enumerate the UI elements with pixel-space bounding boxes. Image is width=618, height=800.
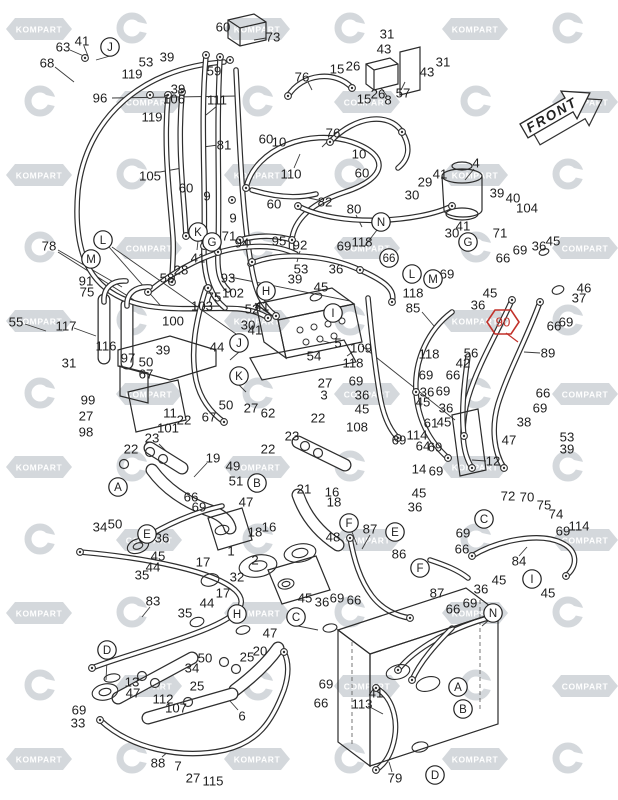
fitting — [251, 261, 253, 263]
fitting — [409, 617, 411, 619]
part-number-callout: 66 — [455, 542, 470, 557]
parts-diagram-page: KOMPART COMPART FRONT — [0, 0, 618, 800]
part-number-callout: 30 — [405, 188, 420, 203]
part-number-callout: 98 — [79, 425, 94, 440]
fitting — [79, 551, 81, 553]
part-number-callout: 69 — [419, 368, 434, 383]
part-number-callout: 26 — [346, 59, 361, 74]
ref-letter-bubble: L — [403, 265, 421, 283]
fitting — [275, 315, 277, 317]
part-number-callout: 45 — [298, 591, 313, 606]
fitting — [84, 57, 86, 59]
part-number-callout: 66 — [347, 593, 362, 608]
fitting — [391, 301, 393, 303]
part-number-callout: 69 — [429, 464, 444, 479]
ref-letter-bubble: M — [82, 250, 100, 268]
ref-letter-bubble: H — [257, 282, 275, 300]
fitting — [463, 435, 465, 437]
part-number-callout: 49 — [226, 459, 241, 474]
part-number-callout: 41 — [255, 299, 270, 314]
part-number-callout: 63 — [56, 40, 71, 55]
parts-diagram: KOMPART COMPART FRONT — [0, 0, 618, 800]
ref-letter-bubble: M — [424, 270, 442, 288]
fitting — [451, 205, 453, 207]
part-number-callout: 20 — [253, 644, 268, 659]
fitting — [503, 467, 505, 469]
part-number-callout: 54 — [307, 349, 322, 364]
fitting — [397, 669, 399, 671]
part-number-callout: 107 — [165, 701, 187, 716]
ref-letter-bubble: 66 — [380, 249, 398, 267]
part-number-callout: 11 — [163, 406, 177, 421]
part-number-callout: 92 — [293, 238, 308, 253]
part-number-callout: 75 — [207, 290, 222, 305]
fitting — [539, 301, 541, 303]
part-number-callout: 15 — [357, 92, 372, 107]
part-number-callout: 85 — [406, 301, 421, 316]
fitting — [349, 537, 351, 539]
ref-letter-bubble: F — [340, 514, 358, 532]
part-number-callout: 45 — [437, 415, 452, 430]
part-number-callout: 66 — [446, 602, 461, 617]
ref-letter-text: C — [480, 514, 488, 526]
part-number-callout: 10 — [272, 135, 287, 150]
part-number-callout: 118 — [351, 235, 372, 250]
part-number-callout: 4 — [472, 156, 479, 171]
part-number-callout: 1 — [227, 544, 234, 559]
part-number-callout: 80 — [347, 202, 362, 217]
ref-letter-text: J — [236, 338, 242, 350]
part-number-callout: 45 — [492, 573, 507, 588]
part-number-callout: 22 — [177, 413, 192, 428]
fitting — [217, 251, 219, 253]
ref-letter-bubble: N — [372, 213, 390, 231]
part-number-callout: 41 — [248, 323, 263, 338]
part-number-callout: 39 — [160, 50, 175, 65]
part-number-callout: 36 — [471, 298, 486, 313]
part-number-callout: 84 — [512, 554, 527, 569]
ref-letter-text: C — [292, 612, 300, 624]
part-number-callout: 117 — [55, 319, 76, 334]
part-number-callout: 22 — [124, 442, 139, 457]
ref-letter-bubble: I — [324, 304, 342, 322]
ref-letter-text: N — [377, 217, 385, 229]
part-number-callout: 12 — [486, 454, 501, 469]
part-number-callout: 32 — [230, 570, 245, 585]
part-number-callout: 47 — [239, 495, 254, 510]
part-number-callout: 99 — [81, 393, 96, 408]
part-number-callout: 36 — [329, 262, 344, 277]
part-number-callout: 102 — [222, 286, 244, 301]
part-number-callout: 14 — [412, 462, 427, 477]
part-number-callout: 31 — [436, 55, 451, 70]
ref-letter-text: 66 — [383, 253, 396, 265]
part-number-callout: 66 — [547, 319, 562, 334]
part-number-callout: 3 — [320, 388, 327, 403]
fitting — [287, 95, 289, 97]
fitting — [471, 555, 473, 557]
part-number-callout: 23 — [285, 429, 300, 444]
ref-letter-bubble: C — [287, 608, 305, 626]
part-number-callout: 100 — [162, 314, 184, 329]
fitting — [565, 575, 567, 577]
fitting — [359, 269, 361, 271]
part-number-callout: 71 — [493, 226, 508, 241]
fitting — [283, 651, 285, 653]
ref-letter-text: K — [235, 371, 243, 383]
part-number-callout: 118 — [342, 356, 363, 371]
part-number-callout: 39 — [288, 272, 303, 287]
part-number-callout: 76 — [295, 70, 310, 85]
part-number-callout: 37 — [572, 291, 587, 306]
part-number-callout: 39 — [156, 343, 171, 358]
ref-letter-bubble: C — [475, 510, 493, 528]
part-number-callout: 35 — [135, 568, 150, 583]
fitting — [219, 56, 221, 58]
part-number-callout: 22 — [261, 442, 276, 457]
part-number-callout: 36 — [408, 500, 423, 515]
part-number-callout: 31 — [380, 27, 395, 42]
ref-letter-text: G — [208, 237, 217, 249]
ref-letter-bubble: J — [230, 334, 248, 352]
part-number-callout: 45 — [412, 486, 427, 501]
part-number-callout: 18 — [327, 495, 342, 510]
part-number-callout: 119 — [141, 110, 162, 125]
part-number-callout: 2 — [251, 553, 258, 568]
part-number-callout: 116 — [95, 339, 116, 354]
part-number-callout: 47 — [502, 433, 517, 448]
part-number-callout: 67 — [202, 410, 217, 425]
fitting — [205, 54, 207, 56]
part-number-callout: 59 — [207, 64, 222, 79]
ref-letter-bubble: H — [228, 605, 246, 623]
part-number-callout: 58 — [160, 271, 175, 286]
part-number-callout: 72 — [501, 489, 516, 504]
part-number-callout: 87 — [430, 586, 445, 601]
ref-letter-bubble: I — [523, 570, 541, 588]
fitting — [447, 457, 449, 459]
part-number-callout: 105 — [139, 169, 161, 184]
ref-letter-text: H — [262, 286, 270, 298]
ref-letter-text: M — [428, 274, 438, 286]
fitting — [245, 187, 247, 189]
part-number-callout: 69 — [463, 596, 478, 611]
part-number-callout: 41 — [433, 167, 448, 182]
fitting — [149, 94, 151, 96]
ref-letter-text: B — [253, 478, 261, 490]
ref-letter-bubble: E — [138, 525, 156, 543]
part-number-callout: 33 — [71, 716, 86, 731]
part-number-callout: 17 — [216, 586, 231, 601]
part-number-callout: 66 — [496, 251, 511, 266]
part-number-callout: 9 — [229, 211, 236, 226]
part-number-callout: 66 — [314, 696, 329, 711]
part-number-callout: 45 — [314, 280, 329, 295]
part-number-callout: 104 — [516, 201, 538, 216]
fitting — [401, 131, 403, 133]
ref-letter-bubble: F — [411, 559, 429, 577]
fitting — [329, 141, 331, 143]
part-number-callout: 69 — [428, 440, 443, 455]
part-number-callout: 5 — [334, 336, 341, 351]
ref-letter-text: G — [464, 237, 473, 249]
fitting — [297, 205, 299, 207]
ref-letter-text: A — [114, 482, 122, 494]
ref-letter-text: M — [86, 254, 96, 266]
part-number-callout: 30 — [445, 226, 460, 241]
part-number-callout: 69 — [436, 384, 451, 399]
fitting — [231, 199, 233, 201]
part-number-callout: 106 — [163, 92, 185, 107]
part-number-callout: 83 — [146, 594, 161, 609]
fitting — [471, 467, 473, 469]
part-number-callout: 113 — [351, 697, 372, 712]
part-number-callout: 47 — [263, 626, 278, 641]
ref-letter-text: D — [431, 770, 439, 782]
part-number-callout: 76 — [326, 126, 341, 141]
part-number-callout: 96 — [93, 91, 108, 106]
part-number-callout: 28 — [174, 263, 189, 278]
part-number-callout: 97 — [121, 351, 136, 366]
part-number-callout: 9 — [203, 189, 210, 204]
fitting — [411, 679, 413, 681]
part-number-callout: 45 — [546, 234, 561, 249]
ref-letter-bubble: E — [386, 523, 404, 541]
valve-port — [317, 336, 323, 342]
part-number-callout: 27 — [79, 409, 94, 424]
part-number-callout: 110 — [280, 167, 301, 182]
part-number-callout: 60 — [216, 20, 231, 35]
part-number-callout: 36 — [315, 595, 330, 610]
fitting — [147, 291, 149, 293]
part-number-callout: 27 — [244, 401, 259, 416]
part-number-callout: 36 — [532, 239, 547, 254]
part-number-callout: 111 — [207, 93, 227, 108]
part-number-callout: 34 — [185, 661, 200, 676]
part-number-callout: 36 — [439, 401, 454, 416]
ref-letter-text: E — [143, 529, 151, 541]
fitting — [351, 87, 353, 89]
part-number-callout: 36 — [355, 388, 370, 403]
part-number-callout: 60 — [179, 181, 194, 196]
part-number-callout: 16 — [262, 520, 277, 535]
part-number-callout: 87 — [363, 522, 378, 537]
part-number-callout: 50 — [198, 651, 213, 666]
part-number-callout: 25 — [190, 679, 205, 694]
part-number-callout: 47 — [126, 686, 141, 701]
part-number-callout: 44 — [210, 340, 225, 355]
part-number-callout: 95 — [272, 234, 287, 249]
part-number-callout: 114 — [568, 519, 589, 534]
ref-letter-bubble: N — [484, 604, 502, 622]
part-number-callout: 115 — [202, 774, 223, 789]
part-number-callout: 78 — [42, 239, 57, 254]
part-number-callout: 29 — [418, 175, 433, 190]
ref-letter-text: F — [416, 563, 423, 575]
part-number-callout: 15 — [330, 62, 345, 77]
part-number-callout: 39 — [560, 442, 575, 457]
part-number-callout: 108 — [346, 420, 368, 435]
part-number-callout: 119 — [121, 67, 142, 82]
ref-letter-text: D — [103, 645, 111, 657]
part-number-callout: 44 — [200, 596, 215, 611]
part-number-callout: 69 — [192, 500, 207, 515]
part-number-callout: 50 — [108, 517, 123, 532]
part-number-callout: 118 — [418, 347, 439, 362]
fitting — [185, 235, 187, 237]
part-number-callout: 69 — [349, 374, 364, 389]
fitting — [375, 769, 377, 771]
part-number-callout: 36 — [474, 582, 489, 597]
part-number-callout: 48 — [326, 530, 341, 545]
part-number-callout: 22 — [311, 411, 326, 426]
ref-letter-text: K — [194, 227, 202, 239]
part-number-callout: 109 — [350, 341, 372, 356]
part-number-callout: 38 — [517, 415, 532, 430]
ref-letter-text: L — [100, 235, 107, 247]
part-number-callout: 68 — [40, 56, 55, 71]
ref-letter-bubble: G — [203, 233, 221, 251]
part-number-callout: 88 — [151, 756, 166, 771]
part-number-callout: 35 — [178, 606, 193, 621]
ref-letter-text: H — [233, 609, 241, 621]
ref-letter-bubble: D — [98, 641, 116, 659]
ref-letter-bubble: G — [459, 233, 477, 251]
part-number-callout: 60 — [355, 166, 370, 181]
ref-letter-text: A — [454, 682, 462, 694]
part-number-callout: 19 — [206, 451, 221, 466]
fitting — [415, 391, 417, 393]
ref-letter-bubble: A — [449, 678, 467, 696]
part-number-callout: 26 — [371, 87, 386, 102]
part-number-callout: 69 — [513, 243, 528, 258]
ref-letter-text: L — [409, 269, 416, 281]
fitting — [511, 299, 513, 301]
ref-letter-text: I — [331, 308, 334, 320]
part-number-callout: 43 — [377, 42, 392, 57]
part-number-callout: 21 — [297, 482, 312, 497]
part-number-callout: 73 — [266, 30, 281, 45]
part-number-callout: 60 — [267, 197, 282, 212]
ref-letter-text: I — [530, 574, 533, 586]
valve-port — [303, 339, 309, 345]
part-number-callout: 31 — [62, 356, 77, 371]
part-number-callout: 69 — [392, 433, 407, 448]
part-number-callout: 55 — [9, 315, 24, 330]
part-number-callout: 79 — [388, 771, 403, 786]
part-number-callout: 34 — [93, 520, 108, 535]
part-number-callout: 7 — [174, 759, 181, 774]
part-number-callout: 43 — [420, 65, 435, 80]
highlight-number[interactable]: 90 — [496, 315, 511, 330]
part-number-callout: 69 — [533, 401, 548, 416]
part-number-callout: 62 — [261, 406, 276, 421]
ref-letter-text: B — [459, 704, 467, 716]
ref-letter-bubble: A — [109, 478, 127, 496]
part-number-callout: 6 — [238, 709, 245, 724]
part-number-callout: 23 — [145, 431, 160, 446]
part-number-callout: 57 — [396, 86, 411, 101]
part-number-callout: 67 — [139, 367, 154, 382]
part-number-callout: 39 — [490, 186, 505, 201]
part-number-callout: 50 — [219, 398, 234, 413]
ref-letter-bubble: K — [230, 367, 248, 385]
part-number-callout: 27 — [186, 771, 201, 786]
ref-letter-text: N — [489, 608, 497, 620]
part-number-callout: 69 — [330, 591, 345, 606]
part-number-callout: 93 — [221, 271, 236, 286]
part-number-callout: 69 — [456, 526, 471, 541]
part-number-callout: 17 — [196, 555, 211, 570]
part-number-callout: 45 — [355, 402, 370, 417]
part-number-callout: 41 — [75, 34, 90, 49]
part-number-callout: 8 — [384, 93, 391, 108]
part-number-callout: 94 — [235, 236, 250, 251]
fitting — [229, 59, 231, 61]
part-number-callout: 45 — [416, 395, 431, 410]
valve-port — [297, 327, 303, 333]
part-number-callout: 70 — [520, 490, 535, 505]
ref-letter-bubble: J — [101, 38, 119, 56]
part-number-callout: 69 — [337, 239, 352, 254]
fitting — [91, 667, 93, 669]
ref-letter-text: E — [391, 527, 399, 539]
ref-letter-text: J — [107, 42, 113, 54]
valve-port — [311, 324, 317, 330]
part-number-callout: 82 — [318, 195, 333, 210]
ref-letter-bubble: B — [454, 700, 472, 718]
part-number-callout: 51 — [229, 474, 244, 489]
fitting — [99, 719, 101, 721]
part-number-callout: 18 — [248, 525, 263, 540]
part-number-callout: 45 — [541, 586, 556, 601]
fitting — [223, 421, 225, 423]
ref-letter-bubble: L — [94, 231, 112, 249]
part-number-callout: 66 — [536, 386, 551, 401]
part-number-callout: 10 — [352, 147, 367, 162]
part-number-callout: 66 — [446, 368, 461, 383]
part-number-callout: 89 — [541, 346, 556, 361]
part-number-callout: 81 — [217, 138, 232, 153]
part-number-callout: 86 — [392, 547, 407, 562]
part-number-callout: 69 — [319, 677, 334, 692]
part-number-callout: 75 — [80, 285, 95, 300]
part-number-callout: 118 — [402, 286, 423, 301]
part-number-callout: 74 — [549, 507, 564, 522]
ref-letter-bubble: B — [248, 474, 266, 492]
part-number-callout: 41 — [191, 251, 206, 266]
ref-letter-bubble: D — [426, 766, 444, 784]
ref-letter-text: F — [345, 518, 352, 530]
fitting — [267, 317, 269, 319]
part-number-callout: 36 — [155, 531, 170, 546]
